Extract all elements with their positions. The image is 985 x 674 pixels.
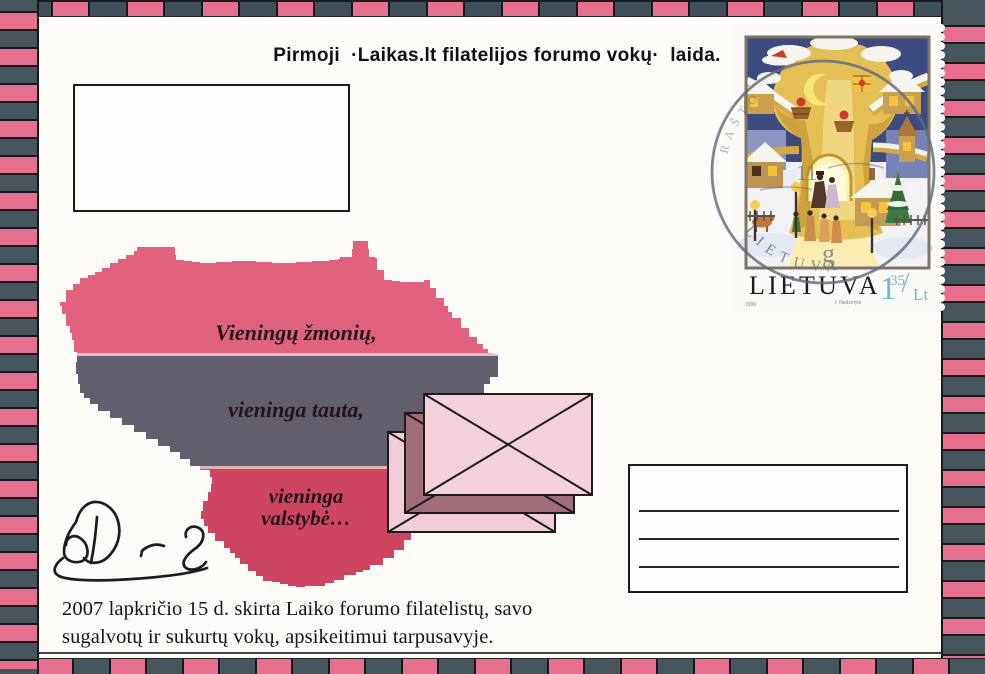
svg-text:I. Nedzelytė: I. Nedzelytė bbox=[835, 300, 862, 306]
svg-text:11: 11 bbox=[796, 160, 817, 185]
svg-text:g: g bbox=[822, 239, 835, 268]
svg-text:1999: 1999 bbox=[745, 302, 756, 308]
